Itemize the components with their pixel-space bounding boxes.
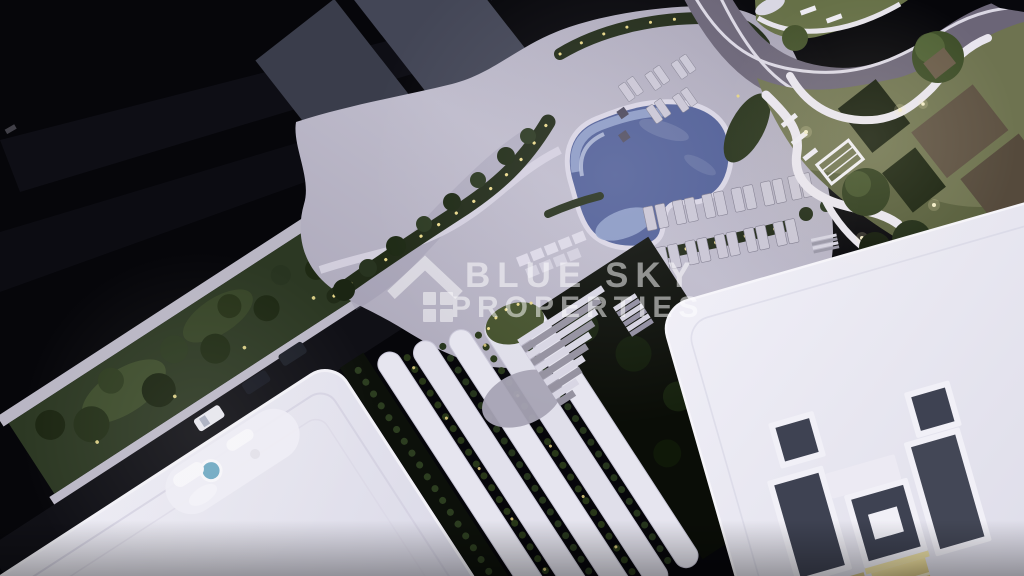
aerial-night-render: BLUE SKY PROPERTIES — [0, 0, 1024, 576]
watermark-line-1: BLUE SKY — [465, 256, 698, 296]
watermark-line-2: PROPERTIES — [451, 291, 704, 325]
